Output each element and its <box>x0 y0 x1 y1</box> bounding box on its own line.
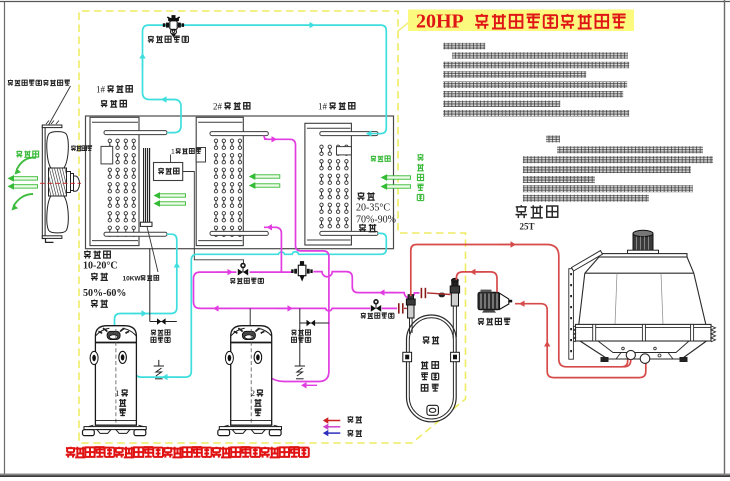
svg-text:70%-90%: 70%-90% <box>356 214 396 225</box>
svg-text:10-20°C: 10-20°C <box>83 261 118 272</box>
svg-text:1#: 1# <box>318 102 328 112</box>
svg-text:50%-60%: 50%-60% <box>83 288 126 299</box>
svg-text:25T: 25T <box>520 222 535 232</box>
svg-text:2#: 2# <box>213 102 223 112</box>
svg-text:2: 2 <box>251 388 255 398</box>
svg-text:1: 1 <box>115 388 119 398</box>
svg-text:10KW: 10KW <box>123 276 142 283</box>
svg-text:1: 1 <box>171 148 175 155</box>
svg-text:20-35°C: 20-35°C <box>356 202 390 213</box>
svg-text:20HP: 20HP <box>416 11 464 33</box>
svg-text:1#: 1# <box>96 85 106 95</box>
